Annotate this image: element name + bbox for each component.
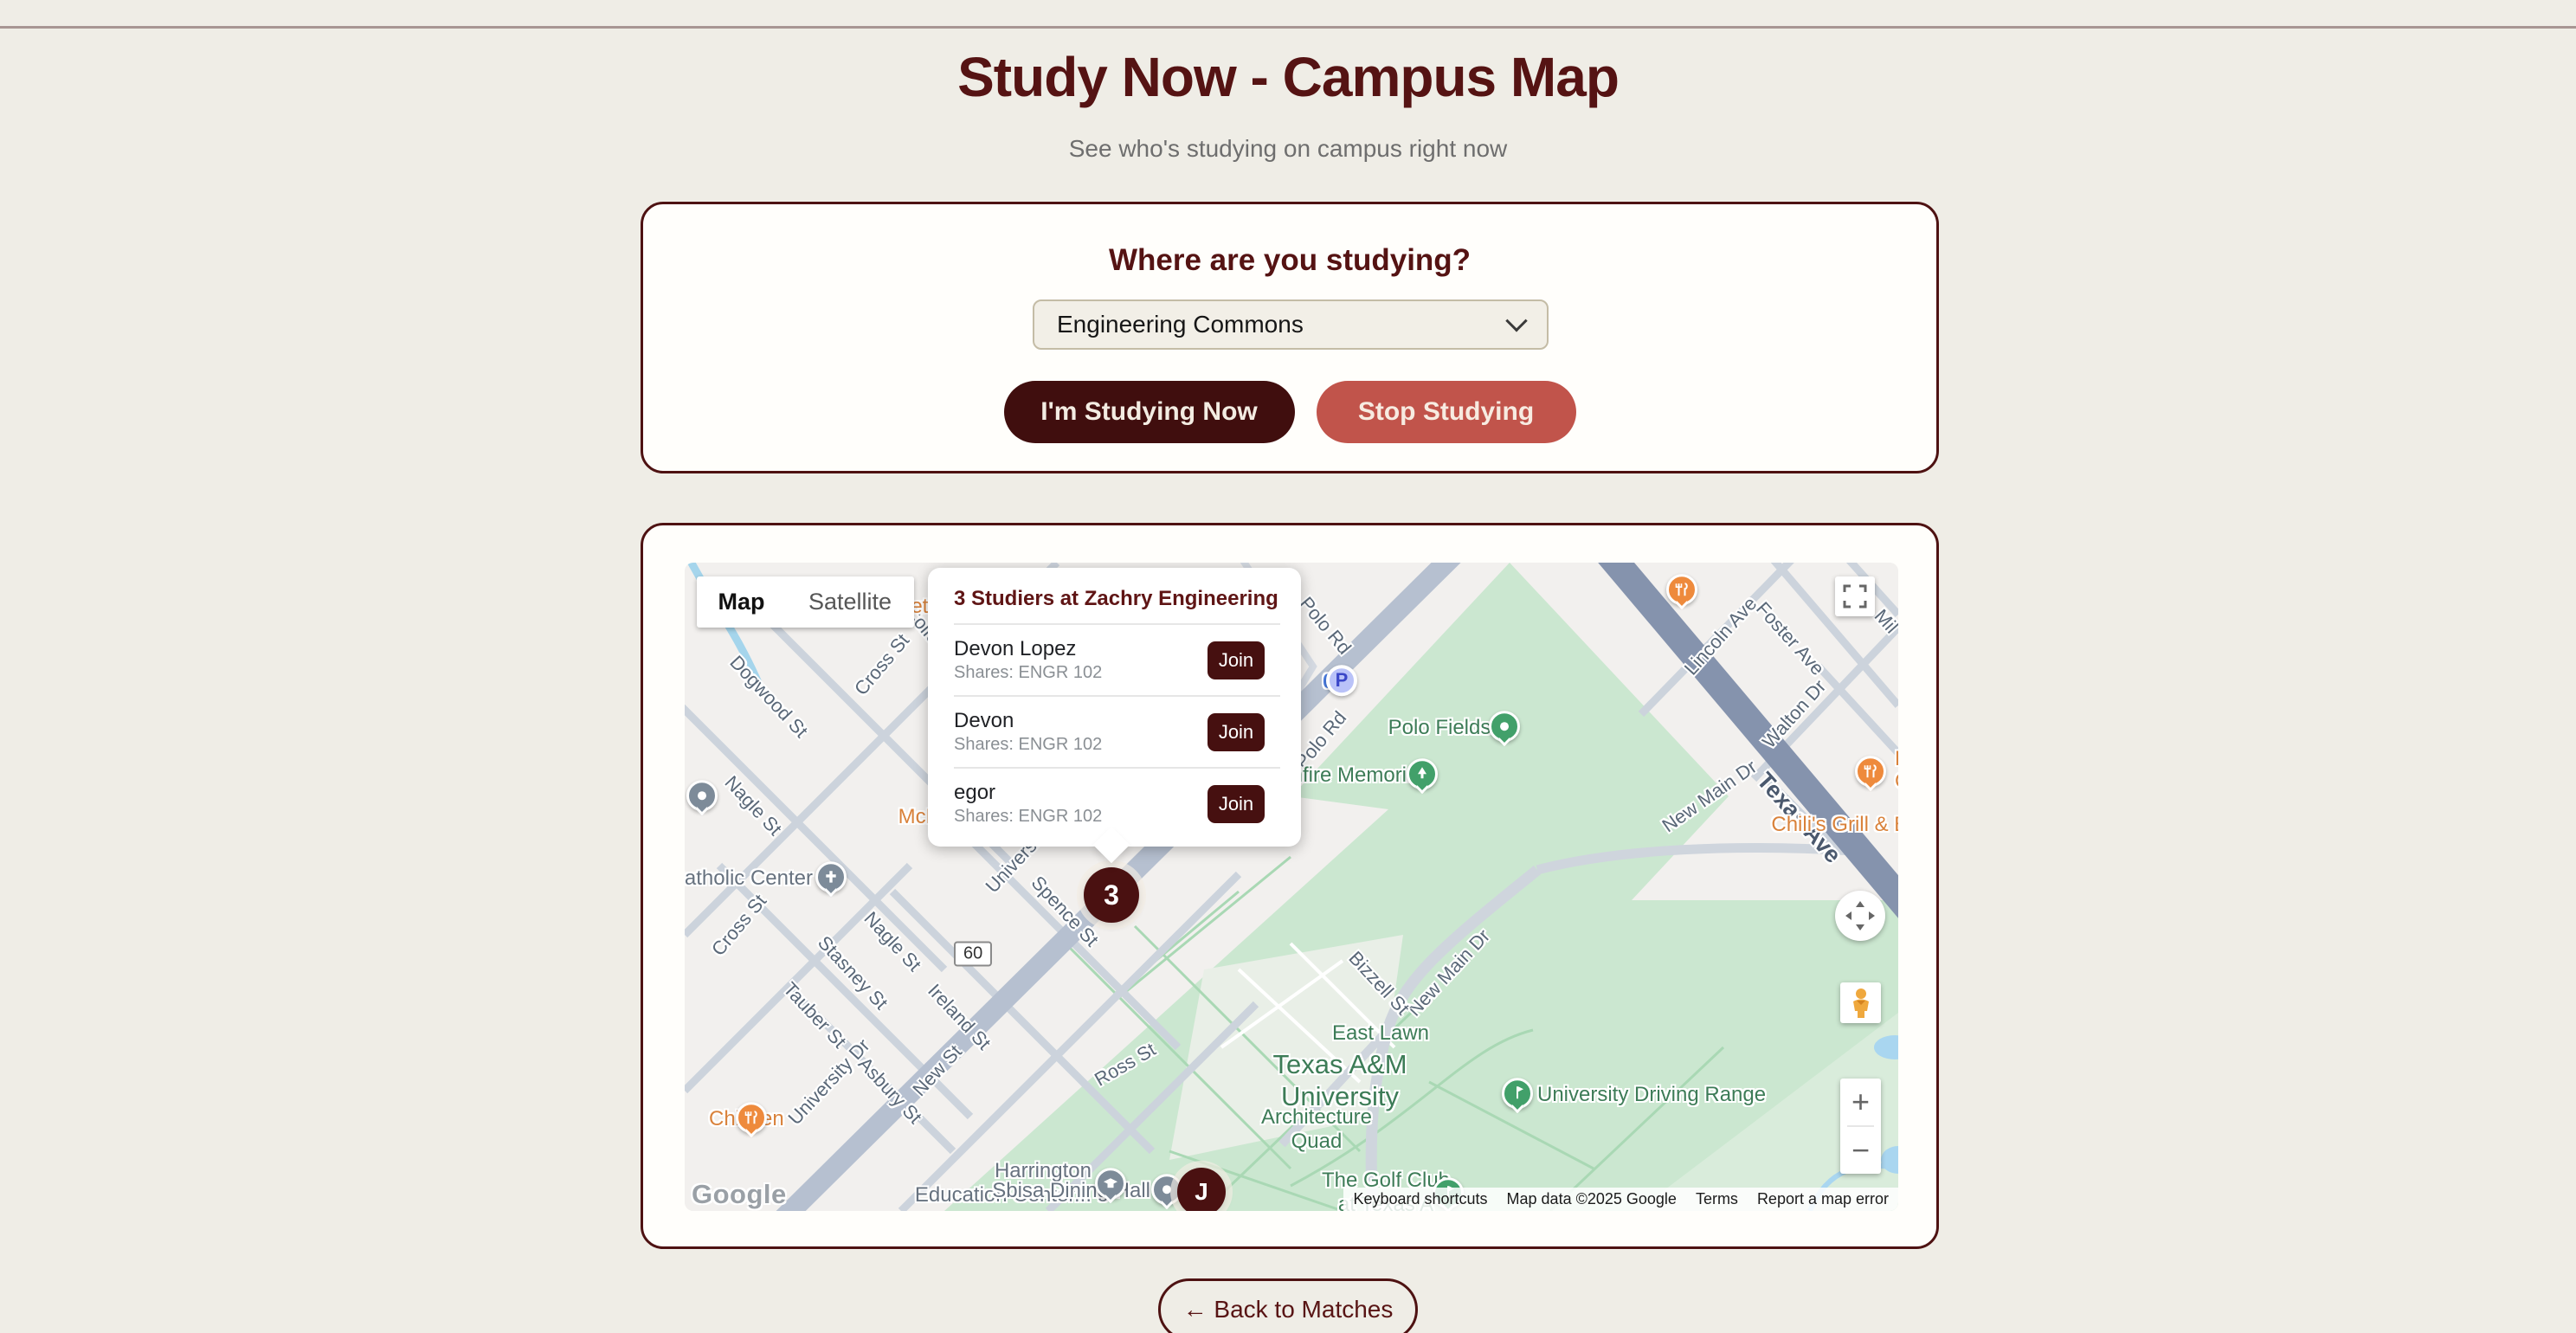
golf-pin-icon[interactable] — [1502, 1078, 1533, 1109]
page-title: Study Now - Campus Map — [0, 45, 2576, 109]
page: Study Now - Campus Map See who's studyin… — [0, 0, 2576, 1333]
im-studying-now-button[interactable]: I'm Studying Now — [1004, 381, 1295, 443]
terms-link[interactable]: Terms — [1686, 1190, 1748, 1208]
map-label-chilis: Chili's Grill & Bar — [1771, 814, 1898, 836]
google-map[interactable]: Dogwood StCross StCollege MainCross StNa… — [685, 563, 1898, 1211]
map-attribution: Keyboard shortcuts Map data ©2025 Google… — [1343, 1188, 1898, 1211]
tree-pin-icon[interactable] — [1407, 758, 1438, 789]
user-marker[interactable]: J — [1177, 1168, 1226, 1211]
top-divider — [0, 26, 2576, 29]
location-select[interactable]: Engineering Commons — [1033, 299, 1549, 350]
map-label-east_lawn: East Lawn — [1332, 1021, 1429, 1046]
join-button[interactable]: Join — [1207, 713, 1265, 751]
studier-shares: Shares: ENGR 102 — [954, 806, 1102, 827]
studier-shares: Shares: ENGR 102 — [954, 734, 1102, 756]
studier-row: Devon Shares: ENGR 102 Join — [954, 697, 1280, 769]
map-label-polo_fields: Polo Fields — [1388, 716, 1491, 740]
fullscreen-icon — [1842, 583, 1868, 609]
report-map-error-link[interactable]: Report a map error — [1748, 1190, 1898, 1208]
fullscreen-button[interactable] — [1835, 576, 1875, 616]
page-subtitle: See who's studying on campus right now — [0, 135, 2576, 163]
pan-control-button[interactable] — [1835, 891, 1885, 941]
pegman-button[interactable] — [1840, 982, 1881, 1023]
pegman-icon — [1848, 988, 1874, 1019]
map-label-sbisa: Sbisa Dining Hall — [992, 1179, 1150, 1203]
stop-studying-button[interactable]: Stop Studying — [1317, 381, 1576, 443]
studier-row: Devon Lopez Shares: ENGR 102 Join — [954, 625, 1280, 697]
map-type-satellite-button[interactable]: Satellite — [786, 589, 914, 615]
map-type-control: Map Satellite — [697, 576, 914, 628]
rest-pin-icon[interactable] — [1855, 756, 1886, 787]
google-logo: Google — [692, 1179, 787, 1210]
form-buttons: I'm Studying Now Stop Studying — [643, 381, 1936, 443]
keyboard-shortcuts-link[interactable]: Keyboard shortcuts — [1343, 1190, 1497, 1208]
studier-name: egor — [954, 780, 1102, 806]
map-label-route_60: 60 — [954, 942, 992, 967]
map-label-driving_range: University Driving Range — [1537, 1083, 1766, 1107]
studiers-popup: 3 Studiers at Zachry Engineering Devon L… — [928, 568, 1301, 847]
grad-pin-icon[interactable] — [1095, 1168, 1126, 1199]
zoom-out-button[interactable]: − — [1840, 1127, 1881, 1174]
map-card: Dogwood StCross StCollege MainCross StNa… — [641, 523, 1939, 1249]
studier-name: Devon — [954, 708, 1102, 734]
study-form-card: Where are you studying? Engineering Comm… — [641, 202, 1939, 473]
map-label-catholic_center: Catholic Center — [685, 866, 813, 891]
join-button[interactable]: Join — [1207, 785, 1265, 823]
map-label-architecture_quad: ArchitectureQuad — [1261, 1105, 1372, 1154]
map-label-fc: FuCa — [1895, 748, 1898, 793]
popup-title: 3 Studiers at Zachry Engineering — [954, 587, 1280, 611]
map-data-text: Map data ©2025 Google — [1497, 1190, 1686, 1208]
studier-shares: Shares: ENGR 102 — [954, 662, 1102, 684]
form-heading: Where are you studying? — [643, 243, 1936, 278]
rest-pin-icon[interactable] — [736, 1102, 767, 1133]
parking-pin-icon[interactable]: P — [1326, 665, 1357, 696]
back-to-matches-button[interactable]: ← Back to Matches — [1158, 1278, 1418, 1333]
zoom-control: + − — [1840, 1079, 1881, 1174]
zoom-in-button[interactable]: + — [1840, 1079, 1881, 1125]
join-button[interactable]: Join — [1207, 641, 1265, 679]
rest-pin-icon[interactable] — [1666, 574, 1697, 605]
map-label-tamu: Texas A&MUniversity — [1272, 1048, 1407, 1112]
studier-row: egor Shares: ENGR 102 Join — [954, 769, 1280, 839]
studier-name: Devon Lopez — [954, 636, 1102, 662]
green-dot-pin-icon[interactable] — [1489, 711, 1520, 742]
dot-pin-icon[interactable] — [686, 780, 718, 811]
map-type-map-button[interactable]: Map — [697, 589, 786, 615]
chevron-down-icon — [1505, 310, 1527, 332]
pan-arrows-icon — [1843, 898, 1877, 933]
studier-cluster-marker[interactable]: 3 — [1084, 867, 1139, 923]
location-select-value: Engineering Commons — [1057, 311, 1304, 338]
cross-pin-icon[interactable] — [815, 861, 847, 892]
